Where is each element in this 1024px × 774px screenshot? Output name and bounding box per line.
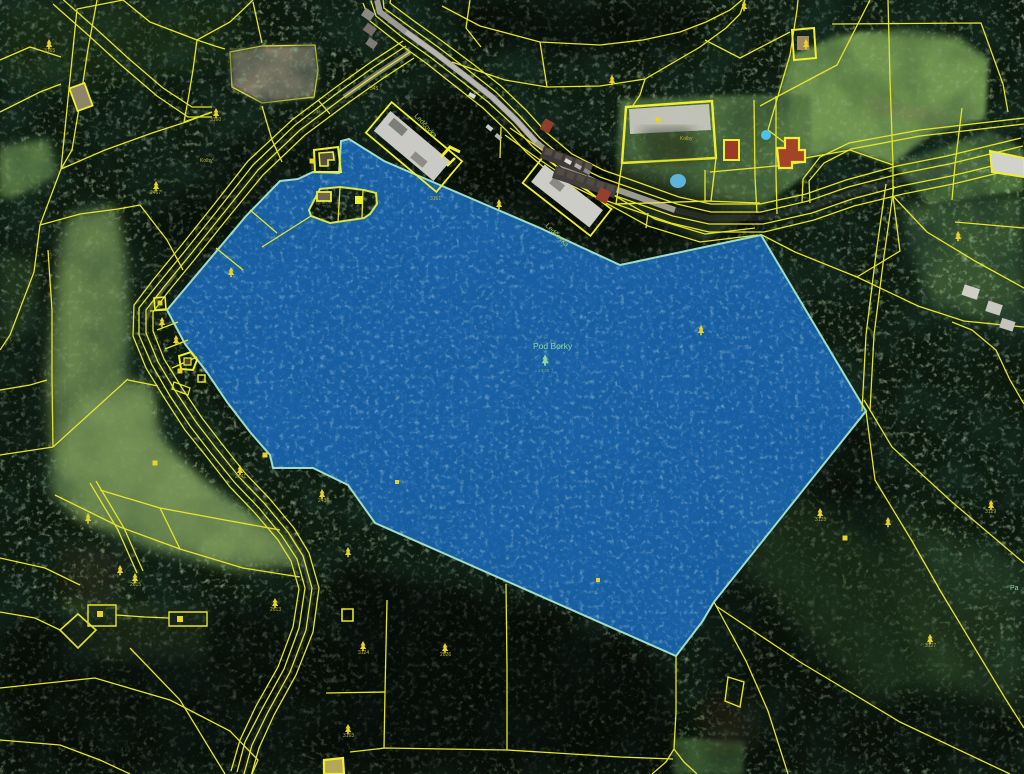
svg-text:3163: 3163 [343, 733, 354, 739]
svg-text:3124: 3124 [358, 650, 369, 656]
svg-text:2613: 2613 [270, 607, 281, 613]
svg-text:3129: 3129 [985, 509, 996, 515]
svg-text:Pod Borky: Pod Borky [533, 341, 573, 351]
svg-text:2626: 2626 [440, 652, 451, 658]
svg-text:3161: 3161 [430, 196, 441, 202]
svg-text:2467: 2467 [150, 190, 161, 196]
svg-text:2436: 2436 [318, 498, 329, 504]
svg-text:3125: 3125 [815, 517, 826, 523]
svg-text:3165: 3165 [44, 48, 55, 54]
svg-text:2615: 2615 [130, 582, 141, 588]
svg-text:3141: 3141 [235, 474, 246, 480]
svg-text:14 26: 14 26 [538, 368, 550, 373]
svg-text:3160: 3160 [210, 117, 221, 123]
svg-text:345: 345 [370, 86, 379, 92]
svg-text:Pa: Pa [1010, 585, 1019, 592]
svg-text:Kolby: Kolby [200, 158, 213, 164]
svg-text:3127: 3127 [925, 643, 936, 649]
svg-text:Kolby: Kolby [680, 136, 693, 142]
